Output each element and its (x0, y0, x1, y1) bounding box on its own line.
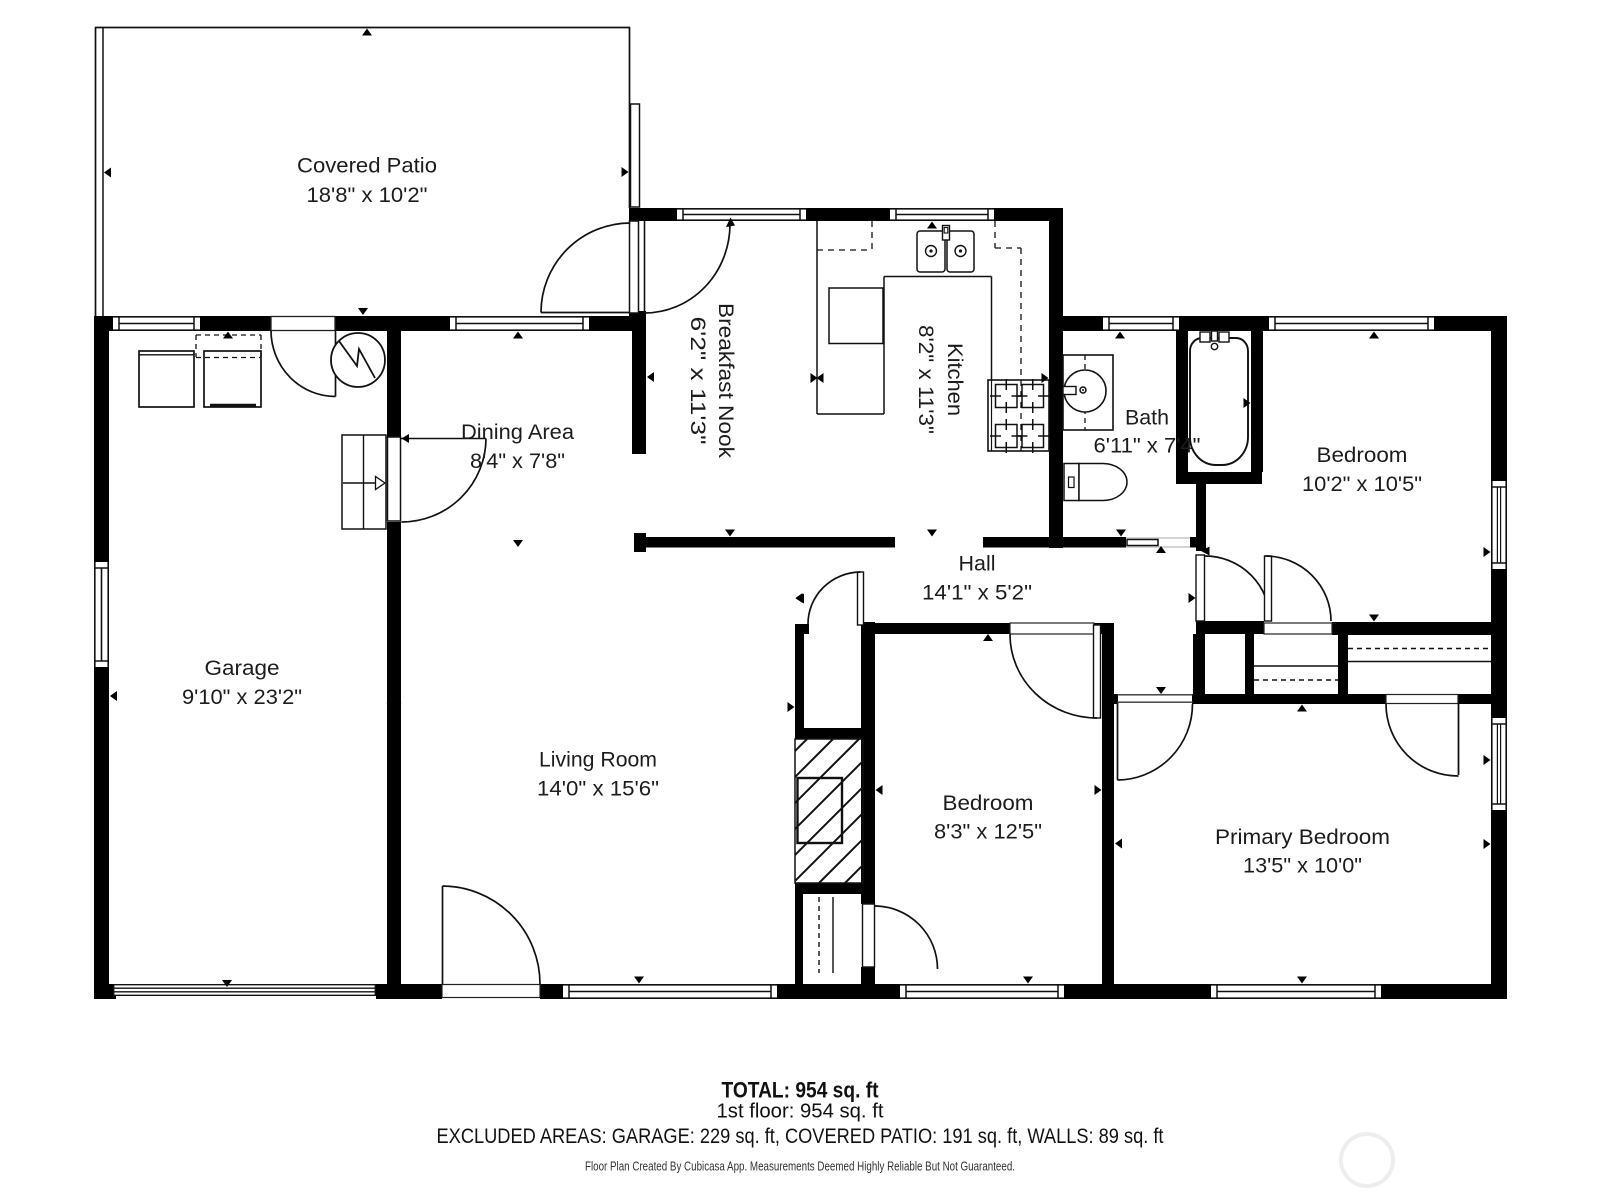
svg-text:Bath: Bath (1125, 407, 1169, 430)
svg-text:8'3" x 12'5": 8'3" x 12'5" (934, 821, 1042, 844)
svg-text:Primary Bedroom: Primary Bedroom (1215, 826, 1390, 849)
svg-text:Breakfast Nook: Breakfast Nook (714, 303, 737, 459)
svg-text:8'2" x 11'3": 8'2" x 11'3" (914, 325, 937, 434)
svg-text:Covered Patio: Covered Patio (297, 155, 437, 178)
svg-text:Bedroom: Bedroom (943, 792, 1034, 815)
svg-text:Garage: Garage (205, 657, 280, 680)
svg-text:Hall: Hall (959, 553, 996, 576)
svg-text:Living Room: Living Room (539, 749, 657, 772)
svg-text:8'4" x 7'8": 8'4" x 7'8" (470, 450, 565, 473)
svg-text:9'10" x 23'2": 9'10" x 23'2" (182, 686, 302, 709)
svg-text:14'1" x 5'2": 14'1" x 5'2" (922, 582, 1032, 605)
svg-text:14'0" x 15'6": 14'0" x 15'6" (537, 778, 659, 801)
svg-text:Kitchen: Kitchen (943, 343, 966, 416)
svg-text:18'8" x 10'2": 18'8" x 10'2" (307, 184, 428, 207)
svg-text:13'5" x 10'0": 13'5" x 10'0" (1243, 855, 1362, 878)
svg-text:6'2" x 11'3": 6'2" x 11'3" (686, 317, 709, 445)
svg-text:Floor Plan Created By Cubicasa: Floor Plan Created By Cubicasa App. Meas… (585, 1160, 1015, 1174)
svg-text:6'11" x 7'4": 6'11" x 7'4" (1094, 435, 1201, 458)
svg-text:Bedroom: Bedroom (1317, 444, 1408, 467)
svg-text:10'2" x 10'5": 10'2" x 10'5" (1302, 473, 1422, 496)
svg-text:Dining Area: Dining Area (461, 421, 574, 444)
svg-text:1st floor: 954 sq. ft: 1st floor: 954 sq. ft (717, 1100, 884, 1123)
svg-text:EXCLUDED AREAS: GARAGE: 229 sq: EXCLUDED AREAS: GARAGE: 229 sq. ft, COVE… (437, 1125, 1164, 1148)
